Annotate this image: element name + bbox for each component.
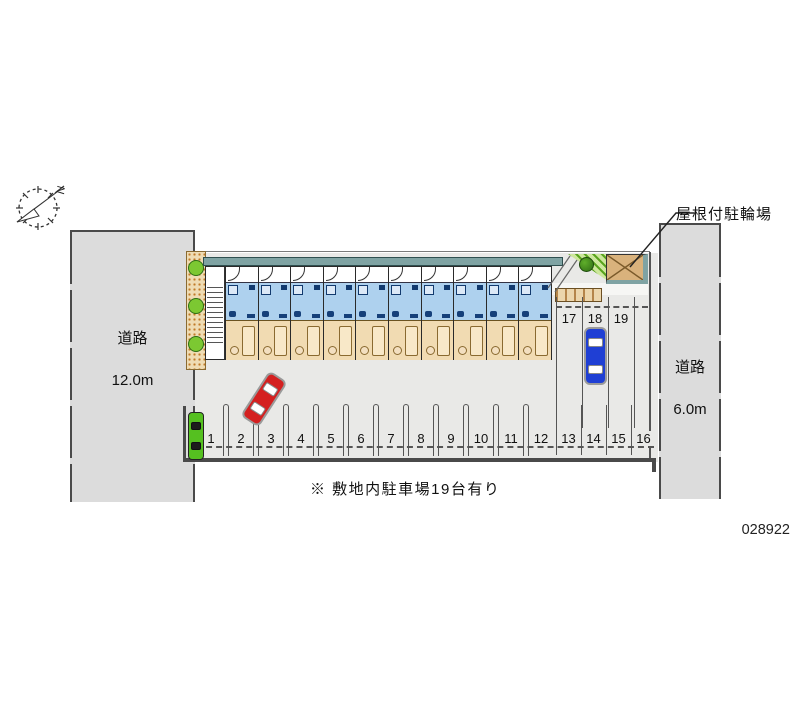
- toilet-icon: [229, 311, 236, 317]
- washer-icon: [228, 285, 238, 295]
- sink-icon: [279, 314, 287, 318]
- compass-north-arrow: N: [12, 180, 70, 238]
- site-left-boundary: [183, 406, 186, 462]
- stall-divider-single: [606, 405, 607, 455]
- washer-icon: [391, 285, 401, 295]
- table-icon: [328, 346, 337, 355]
- parking-space-number: 9: [444, 431, 457, 446]
- green-car: [188, 412, 204, 460]
- toilet-icon: [327, 311, 334, 317]
- stall-divider-double: [283, 404, 289, 456]
- stall-divider-double: [523, 404, 529, 456]
- toilet-icon: [359, 311, 366, 317]
- apartment-unit: [323, 267, 356, 359]
- sink-icon: [377, 314, 385, 318]
- site-right-boundary: [649, 252, 651, 459]
- door-swing-icon: [489, 267, 501, 281]
- apartment-unit: [290, 267, 323, 359]
- boiler-icon: [477, 285, 483, 290]
- unit-living-room: [487, 320, 519, 360]
- unit-bathroom: [356, 282, 388, 320]
- parking-space-number: 7: [384, 431, 397, 446]
- boiler-icon: [346, 285, 352, 290]
- door-swing-icon: [424, 267, 436, 281]
- washer-icon: [489, 285, 499, 295]
- road-left: 道路 12.0m: [70, 230, 195, 502]
- unit-living-room: [389, 320, 421, 360]
- parking-space-number: 18: [585, 311, 605, 326]
- building-roof-eave: [203, 257, 563, 266]
- table-icon: [230, 346, 239, 355]
- plan-number: 028922: [700, 522, 790, 538]
- unit-living-room: [259, 320, 291, 360]
- table-icon: [458, 346, 467, 355]
- unit-row: [225, 267, 551, 359]
- bed-icon: [535, 326, 548, 356]
- unit-living-room: [324, 320, 356, 360]
- stall-divider-double: [373, 404, 379, 456]
- toilet-icon: [457, 311, 464, 317]
- unit-living-room: [422, 320, 454, 360]
- site-plan: N 道路 12.0m 道路 6.0m: [0, 0, 800, 727]
- unit-living-room: [356, 320, 388, 360]
- toilet-icon: [490, 311, 497, 317]
- parking-space-number: 2: [234, 431, 247, 446]
- stall-divider-side: [608, 297, 609, 428]
- stall-divider-single: [631, 405, 632, 455]
- road-right-label: 道路 6.0m: [659, 357, 721, 420]
- bed-icon: [307, 326, 320, 356]
- unit-bathroom: [389, 282, 421, 320]
- boiler-icon: [314, 285, 320, 290]
- parking-space-number: 3: [264, 431, 277, 446]
- apartment-unit: [486, 267, 519, 359]
- blue-car: [584, 327, 607, 385]
- table-icon: [360, 346, 369, 355]
- parking-count-note: ※ 敷地内駐車場19台有り: [310, 478, 500, 499]
- parking-space-number: 5: [324, 431, 337, 446]
- stall-divider-double: [463, 404, 469, 456]
- unit-living-room: [291, 320, 323, 360]
- stair-steps: [207, 287, 223, 347]
- unit-living-room: [519, 320, 551, 360]
- unit-bathroom: [291, 282, 323, 320]
- stall-divider-double: [493, 404, 499, 456]
- bed-icon: [502, 326, 515, 356]
- stall-divider-double: [343, 404, 349, 456]
- door-swing-icon: [456, 267, 468, 281]
- stall-dashed-line-bottom: [196, 446, 654, 448]
- bed-icon: [274, 326, 287, 356]
- apartment-unit: [388, 267, 421, 359]
- stall-divider-side: [582, 297, 583, 428]
- boiler-icon: [379, 285, 385, 290]
- walkway-diagonal-edge: [544, 248, 590, 296]
- bush-icon: [188, 298, 204, 314]
- parking-space-number: 4: [294, 431, 307, 446]
- parking-space-number: 15: [608, 431, 628, 446]
- boiler-icon: [509, 285, 515, 290]
- parking-space-number: 17: [559, 311, 579, 326]
- table-icon: [523, 346, 532, 355]
- unit-bathroom: [324, 282, 356, 320]
- stall-divider-double: [223, 404, 229, 456]
- apartment-unit: [453, 267, 486, 359]
- bed-icon: [372, 326, 385, 356]
- parking-space-number: 14: [583, 431, 603, 446]
- sink-icon: [247, 314, 255, 318]
- sink-icon: [442, 314, 450, 318]
- parking-space-number: 8: [414, 431, 427, 446]
- bed-icon: [437, 326, 450, 356]
- apartment-building: [205, 266, 552, 360]
- boiler-icon: [444, 285, 450, 290]
- parking-space-number: 16: [633, 431, 653, 446]
- toilet-icon: [425, 311, 432, 317]
- parking-space-number: 6: [354, 431, 367, 446]
- washer-icon: [424, 285, 434, 295]
- table-icon: [295, 346, 304, 355]
- bed-icon: [405, 326, 418, 356]
- sink-icon: [507, 314, 515, 318]
- washer-icon: [456, 285, 466, 295]
- unit-bathroom: [454, 282, 486, 320]
- stall-divider-double: [433, 404, 439, 456]
- table-icon: [426, 346, 435, 355]
- washer-icon: [326, 285, 336, 295]
- parking-space-number: 12: [531, 431, 551, 446]
- bush-icon: [188, 336, 204, 352]
- apartment-unit: [421, 267, 454, 359]
- washer-icon: [358, 285, 368, 295]
- door-swing-icon: [261, 267, 273, 281]
- sink-icon: [410, 314, 418, 318]
- bicycle-shed-label: 屋根付駐輪場: [676, 203, 772, 224]
- bed-icon: [242, 326, 255, 356]
- parking-space-number: 10: [471, 431, 491, 446]
- parking-space-number: 11: [501, 431, 521, 446]
- door-swing-icon: [293, 267, 305, 281]
- road-left-label: 道路 12.0m: [70, 328, 195, 391]
- unit-bathroom: [487, 282, 519, 320]
- compass-n-label: N: [54, 185, 67, 194]
- door-swing-icon: [358, 267, 370, 281]
- boiler-icon: [281, 285, 287, 290]
- site-boundary-step: [652, 458, 656, 472]
- toilet-icon: [262, 311, 269, 317]
- stall-divider-double: [313, 404, 319, 456]
- toilet-icon: [392, 311, 399, 317]
- site-bottom-boundary: [184, 458, 656, 462]
- table-icon: [491, 346, 500, 355]
- sink-icon: [344, 314, 352, 318]
- parking-space-number: 13: [558, 431, 578, 446]
- washer-icon: [261, 285, 271, 295]
- sink-icon: [540, 314, 548, 318]
- stall-divider-double: [403, 404, 409, 456]
- bed-icon: [470, 326, 483, 356]
- parking-space-number: 1: [204, 431, 217, 446]
- sink-icon: [475, 314, 483, 318]
- unit-bathroom: [422, 282, 454, 320]
- apartment-unit: [225, 267, 258, 359]
- landscape-strip: [186, 251, 206, 370]
- apartment-unit: [355, 267, 388, 359]
- unit-bathroom: [226, 282, 258, 320]
- boiler-icon: [412, 285, 418, 290]
- unit-living-room: [454, 320, 486, 360]
- parking-space-number: 19: [611, 311, 631, 326]
- apartment-unit: [258, 267, 291, 359]
- door-swing-icon: [391, 267, 403, 281]
- bed-icon: [339, 326, 352, 356]
- door-swing-icon: [228, 267, 240, 281]
- boiler-icon: [249, 285, 255, 290]
- stall-divider-side: [556, 297, 557, 428]
- bush-icon: [188, 260, 204, 276]
- sink-icon: [312, 314, 320, 318]
- toilet-icon: [522, 311, 529, 317]
- washer-icon: [521, 285, 531, 295]
- washer-icon: [293, 285, 303, 295]
- unit-bathroom: [259, 282, 291, 320]
- toilet-icon: [294, 311, 301, 317]
- staircase: [206, 267, 225, 359]
- table-icon: [393, 346, 402, 355]
- unit-living-room: [226, 320, 258, 360]
- door-swing-icon: [326, 267, 338, 281]
- table-icon: [263, 346, 272, 355]
- door-swing-icon: [521, 267, 533, 281]
- stall-divider-side: [634, 297, 635, 428]
